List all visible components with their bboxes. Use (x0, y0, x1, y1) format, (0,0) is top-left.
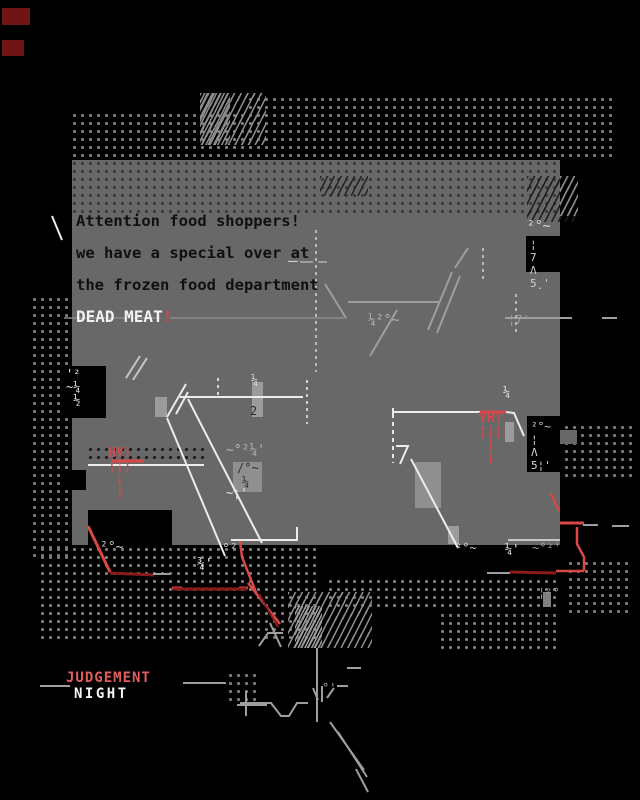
art-symbol: ¼ (503, 386, 510, 399)
art-line (270, 623, 281, 647)
art-symbol: ²°~ (455, 542, 477, 555)
art-line (506, 412, 524, 436)
ansi-art-scene: —²°~¦ 7 Λ 5¸''² ~¼ ½²°~ ¦ Λ 5¦'¼²°~~°²¼'… (0, 0, 640, 800)
art-symbol: ¦ 7 Λ 5¸' (530, 238, 550, 290)
art-line (52, 216, 62, 240)
title-word-judgement: JUDGEMENT (64, 670, 151, 686)
art-line (338, 732, 367, 777)
art-line (577, 527, 584, 571)
art-symbol: ~°²' (532, 542, 561, 555)
announcement-bang: ! (163, 307, 173, 326)
art-line (437, 276, 460, 333)
art-symbol: ~°²¼' (226, 444, 265, 457)
art-symbol: °² (222, 543, 238, 556)
art-symbol: '² ~¼ ½ (66, 368, 80, 407)
announcement-line-3: the frozen food department (76, 276, 319, 294)
art-symbol: ¦7' (508, 314, 530, 327)
art-line (133, 358, 147, 380)
art-line (455, 248, 468, 268)
art-line (167, 418, 225, 556)
announcement-highlight: DEAD MEAT (76, 307, 163, 326)
art-symbol: HY! ¦¡¦ ¡ ¡ (108, 447, 131, 499)
art-symbol: ¼' (505, 543, 519, 556)
title-word-night: NIGHT (64, 686, 151, 702)
art-symbol: ¾' (197, 558, 213, 571)
art-line (110, 573, 154, 575)
art-line (510, 572, 556, 573)
art-symbol: 2 (250, 405, 257, 418)
art-line (411, 459, 458, 548)
title-block: JUDGEMENT NIGHT (64, 670, 151, 702)
art-symbol: ¼²°~ (368, 314, 399, 327)
art-line (356, 769, 368, 792)
announcement-line-1: Attention food shoppers! (76, 212, 300, 230)
art-symbol: ¼ (251, 374, 258, 387)
art-line (259, 594, 278, 627)
art-line (126, 356, 140, 378)
art-symbol: YH! ¦¡¦ ¦ ¡ (479, 412, 502, 464)
art-line (551, 494, 559, 511)
art-symbol: ²°~ ¦ Λ 5¦' (531, 420, 551, 472)
announcement-text: Attention food shoppers! we have a speci… (76, 213, 319, 325)
art-symbol: ²°~ (527, 220, 550, 233)
art-symbol: ¦²° (538, 587, 560, 600)
art-symbol: ~¡' (226, 487, 248, 500)
art-symbol: /°~ (237, 462, 259, 475)
art-symbol: °' (322, 682, 336, 695)
art-line (396, 446, 408, 464)
art-line (325, 284, 346, 318)
art-line (176, 392, 188, 414)
art-symbol: ²°~ (100, 541, 123, 554)
announcement-line-2: we have a special over at (76, 244, 309, 262)
